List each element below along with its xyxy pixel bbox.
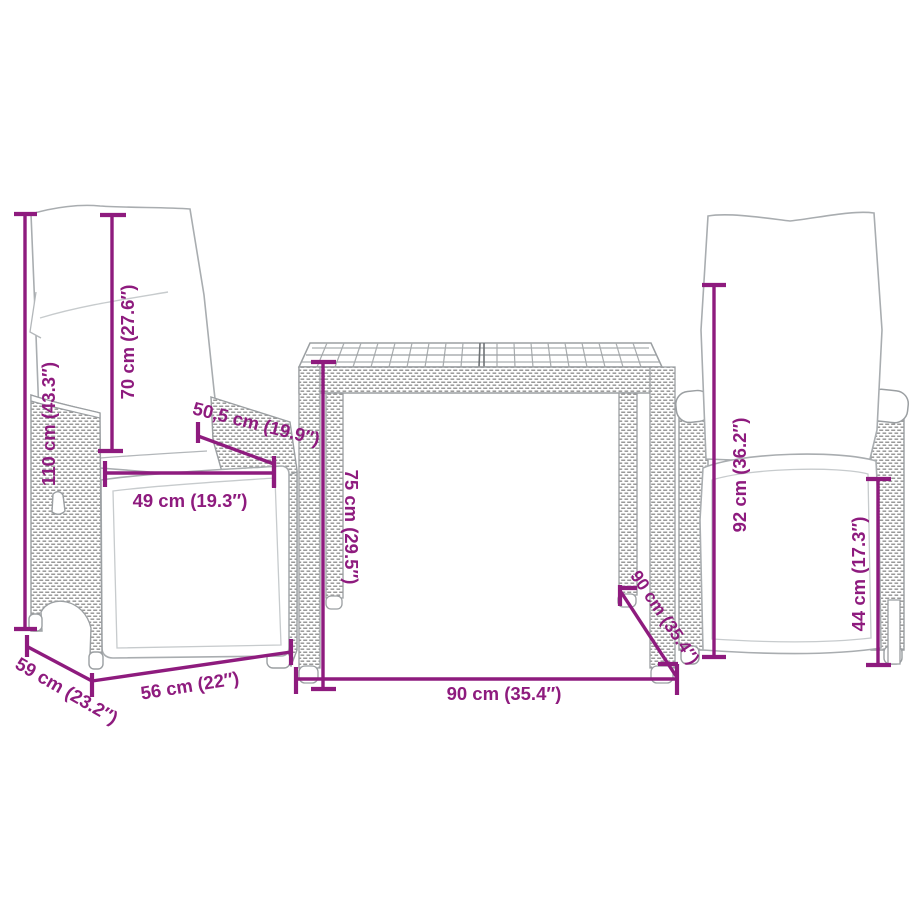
svg-text:44 cm (17.3″): 44 cm (17.3″) [848, 517, 869, 632]
svg-text:59 cm (23.2″): 59 cm (23.2″) [12, 653, 122, 729]
svg-text:75 cm (29.5″): 75 cm (29.5″) [341, 470, 362, 585]
svg-text:90 cm (35.4″): 90 cm (35.4″) [447, 683, 562, 704]
svg-text:49 cm (19.3″): 49 cm (19.3″) [133, 490, 248, 511]
svg-text:92 cm (36.2″): 92 cm (36.2″) [729, 418, 750, 533]
svg-text:110 cm (43.3″): 110 cm (43.3″) [38, 362, 59, 486]
svg-text:70 cm (27.6″): 70 cm (27.6″) [117, 285, 138, 400]
